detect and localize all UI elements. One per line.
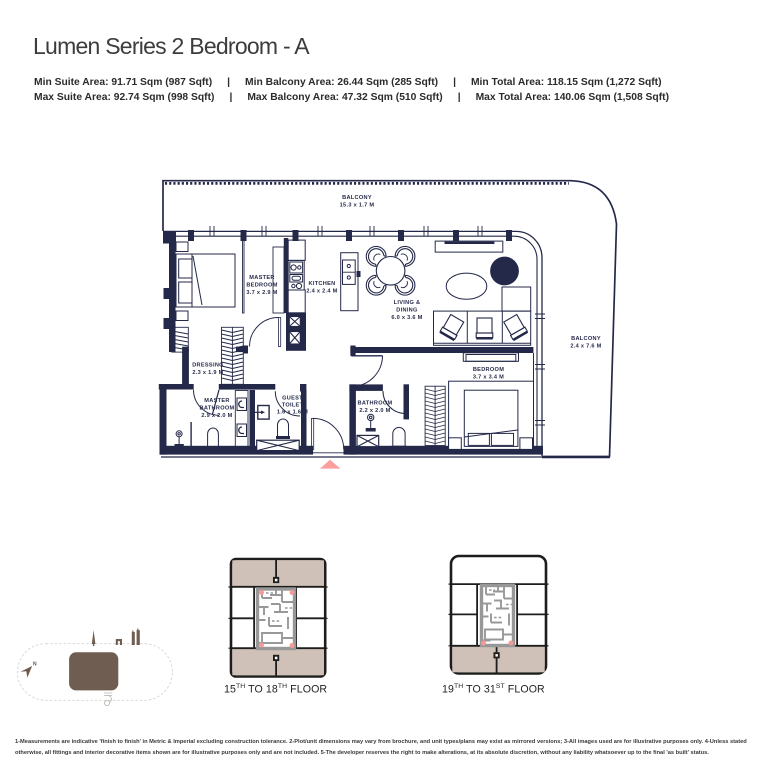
svg-text:KITCHEN: KITCHEN [309,281,336,287]
svg-text:BEDROOM: BEDROOM [473,367,504,373]
svg-text:GUEST: GUEST [282,396,303,402]
svg-text:DINING: DINING [396,308,417,314]
svg-text:BATHROOM: BATHROOM [200,406,235,412]
svg-text:3.7 x 2.9 M: 3.7 x 2.9 M [246,290,277,296]
svg-text:BALCONY: BALCONY [571,336,601,342]
svg-text:6.0 x 3.6 M: 6.0 x 3.6 M [391,315,422,321]
svg-text:2.3 x 1.9 M: 2.3 x 1.9 M [192,370,223,376]
svg-text:MASTER: MASTER [204,398,229,404]
svg-text:BATHROOM: BATHROOM [358,401,393,407]
svg-text:DRESSING: DRESSING [192,363,224,369]
svg-text:2.2 x 2.0 M: 2.2 x 2.0 M [359,408,390,414]
svg-text:LIVING &: LIVING & [394,300,421,306]
svg-text:1.6 x 1.6 M: 1.6 x 1.6 M [277,410,308,416]
svg-text:2.4 x 7.6 M: 2.4 x 7.6 M [570,344,601,350]
svg-text:2.9 x 2.0 M: 2.9 x 2.0 M [201,413,232,419]
svg-text:BALCONY: BALCONY [342,195,372,201]
svg-text:TOILET: TOILET [282,403,304,409]
svg-text:MASTER: MASTER [249,275,274,281]
svg-text:15.3 x 1.7 M: 15.3 x 1.7 M [340,203,375,209]
svg-text:3.7 x 3.4 M: 3.7 x 3.4 M [473,375,504,381]
svg-text:2.4 x 2.4 M: 2.4 x 2.4 M [306,289,337,295]
svg-text:BEDROOM: BEDROOM [246,283,277,289]
svg-text:N: N [33,662,37,668]
